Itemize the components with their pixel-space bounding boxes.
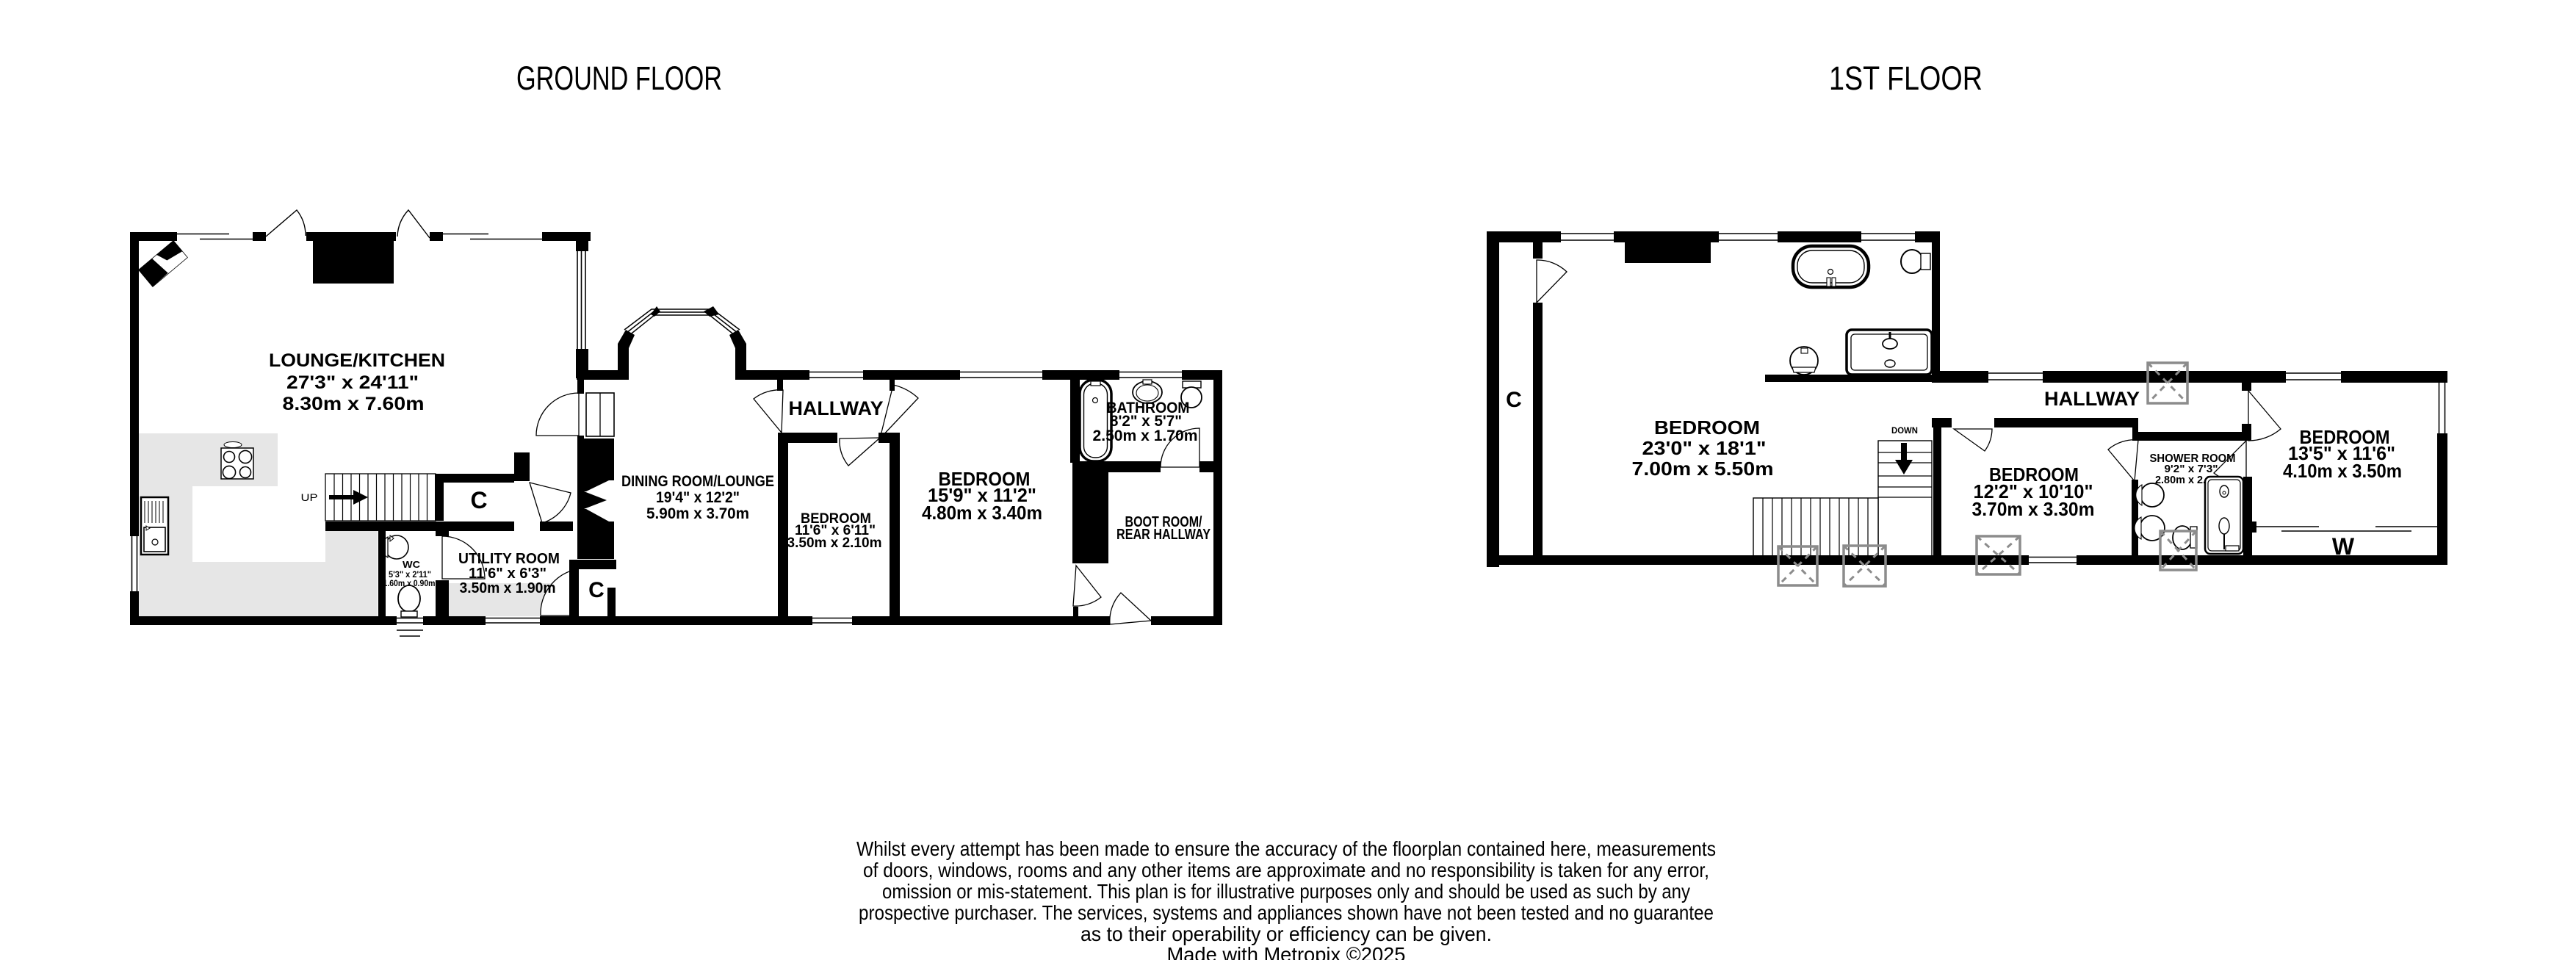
svg-text:8.30m x 7.60m: 8.30m x 7.60m	[283, 394, 425, 414]
svg-text:3.50m x 1.90m: 3.50m x 1.90m	[460, 580, 556, 596]
svg-text:1.60m x 0.90m: 1.60m x 0.90m	[383, 578, 436, 588]
svg-text:Made with Metropix ©2025: Made with Metropix ©2025	[1167, 943, 1406, 960]
svg-text:C: C	[470, 487, 487, 513]
svg-text:27'3" x 24'11": 27'3" x 24'11"	[286, 372, 419, 393]
svg-text:C: C	[1506, 388, 1522, 412]
svg-text:omission or mis-statement. Thi: omission or mis-statement. This plan is …	[882, 880, 1690, 903]
svg-text:WC: WC	[403, 559, 421, 570]
svg-text:REAR HALLWAY: REAR HALLWAY	[1116, 527, 1211, 543]
svg-text:3.70m x 3.30m: 3.70m x 3.30m	[1972, 498, 2095, 520]
svg-text:4.10m x 3.50m: 4.10m x 3.50m	[2283, 460, 2402, 482]
svg-text:HALLWAY: HALLWAY	[2044, 388, 2140, 410]
svg-text:UP: UP	[301, 491, 318, 503]
svg-text:Whilst every attempt has been: Whilst every attempt has been made to en…	[856, 837, 1716, 860]
svg-text:GROUND FLOOR: GROUND FLOOR	[516, 59, 722, 97]
svg-text:7.00m x 5.50m: 7.00m x 5.50m	[1632, 458, 1774, 480]
svg-text:LOUNGE/KITCHEN: LOUNGE/KITCHEN	[269, 350, 445, 371]
svg-text:HALLWAY: HALLWAY	[789, 397, 884, 419]
svg-text:19'4" x 12'2": 19'4" x 12'2"	[656, 489, 740, 506]
svg-text:of doors, windows, rooms and a: of doors, windows, rooms and any other i…	[863, 859, 1709, 881]
svg-text:C: C	[588, 578, 605, 602]
svg-text:DINING ROOM/LOUNGE: DINING ROOM/LOUNGE	[621, 473, 774, 490]
svg-text:3.50m x 2.10m: 3.50m x 2.10m	[787, 535, 882, 551]
svg-text:W: W	[2332, 533, 2355, 560]
svg-text:1ST FLOOR: 1ST FLOOR	[1829, 59, 1982, 97]
svg-text:DOWN: DOWN	[1891, 425, 1918, 436]
svg-text:as to their operability or eff: as to their operability or efficiency ca…	[1080, 923, 1492, 945]
svg-text:2.50m x 1.70m: 2.50m x 1.70m	[1093, 427, 1198, 444]
svg-text:5.90m x 3.70m: 5.90m x 3.70m	[646, 505, 749, 522]
svg-text:11'6" x 6'3": 11'6" x 6'3"	[469, 566, 546, 582]
svg-text:BEDROOM: BEDROOM	[1654, 416, 1760, 439]
svg-text:prospective purchaser. The ser: prospective purchaser. The services, sys…	[859, 901, 1714, 924]
svg-text:23'0" x 18'1": 23'0" x 18'1"	[1642, 437, 1767, 459]
svg-text:UTILITY ROOM: UTILITY ROOM	[458, 551, 560, 567]
svg-text:4.80m x 3.40m: 4.80m x 3.40m	[922, 502, 1042, 524]
